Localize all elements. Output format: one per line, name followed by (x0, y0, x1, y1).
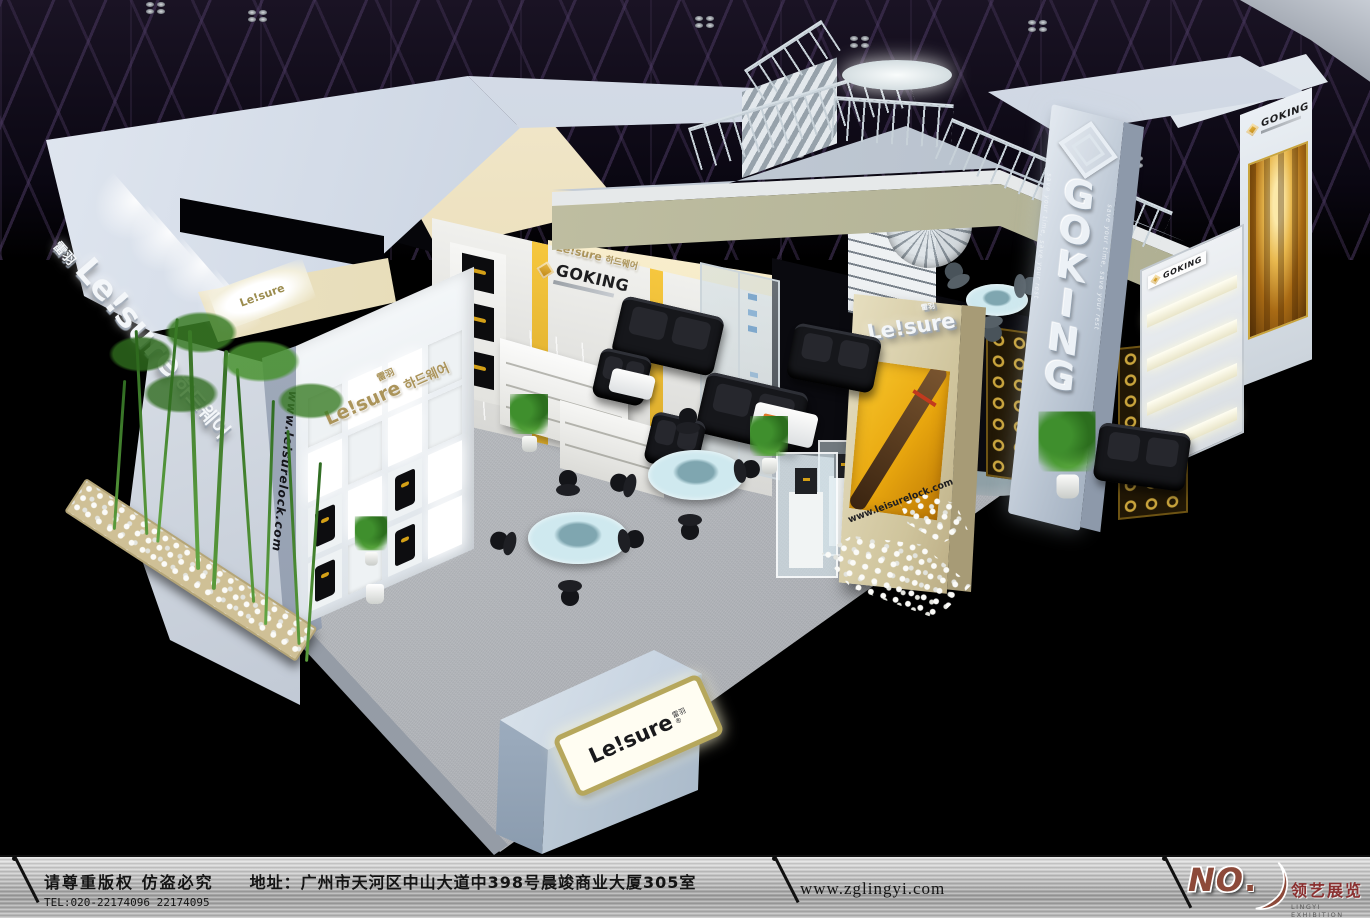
downlight-cluster (146, 2, 165, 14)
potted-plant (351, 516, 390, 565)
glass-label (750, 372, 758, 379)
display-tile (428, 495, 462, 559)
potted-plant (506, 394, 552, 452)
display-tile (428, 385, 462, 449)
goking-diamond-icon (1151, 275, 1161, 285)
shelf-light (1147, 363, 1237, 416)
logo-company-cn: 领艺展览 (1291, 877, 1370, 901)
counter-slat (565, 421, 659, 450)
pedestal-display-box (795, 468, 817, 494)
footer-slash (14, 857, 39, 903)
glass-label (748, 309, 757, 317)
logo-company-en: LINGYI EXHIBITION (1291, 903, 1370, 918)
goking-wordmark: GOKING (1163, 254, 1202, 280)
footer-tel: TEL:020-22174096 22174095 (44, 896, 696, 909)
exhibition-booth-render: Le!sure 雷羽 Le!sure 하드웨어 www.leisurelock.… (0, 0, 1370, 918)
goking-diamond-icon (1246, 123, 1259, 136)
deck-railing (831, 96, 954, 148)
glass-label (748, 293, 757, 301)
display-tile (428, 440, 462, 504)
goking-vertical-letter: G (1042, 355, 1077, 399)
cafe-chair (678, 512, 702, 540)
display-tile (388, 458, 422, 522)
logo-no-text: NO (1188, 861, 1244, 899)
display-tile (348, 421, 382, 485)
glass-table (528, 512, 628, 564)
cafe-chair (614, 526, 646, 554)
downlight-cluster (695, 16, 714, 28)
glass-table (648, 450, 744, 500)
cafe-chair (556, 470, 580, 498)
tower-plant (1033, 412, 1102, 499)
skylight-panel (842, 60, 952, 90)
display-tile (388, 513, 422, 577)
display-tile (388, 403, 422, 467)
downlight-cluster (850, 36, 869, 48)
footer-website: www.zglingyi.com (800, 879, 945, 899)
footer-copyright: 请尊重版权 仿盗必究 (44, 869, 214, 893)
lock-display-card (395, 468, 414, 512)
lock-display-card (315, 559, 334, 603)
downlight-cluster (248, 10, 267, 22)
white-planter-pot (366, 584, 384, 604)
footer-bar: 请尊重版权 仿盗必究 地址：广州市天河区中山大道中398号晨竣商业大厦305室 … (0, 855, 1370, 918)
goking-diamond-icon (536, 261, 554, 279)
shelf-light (1147, 319, 1237, 372)
gold-artwork-panel (1248, 141, 1308, 340)
desk-lightbox-brand: Le!sure (585, 710, 676, 768)
logo-swoosh-icon (1254, 859, 1289, 913)
goking-wordmark: GOKING (1261, 101, 1309, 130)
footer-address: 地址：广州市天河区中山大道中398号晨竣商业大厦305室 (250, 869, 697, 893)
downlight-cluster (1028, 20, 1047, 32)
footer-slash (774, 857, 799, 903)
footer-logo: NO . 领艺展览 LINGYI EXHIBITION (1188, 861, 1370, 918)
glass-label (748, 325, 757, 333)
cafe-chair (676, 408, 700, 436)
bamboo-foliage (96, 300, 346, 480)
front-desk: Le!sure 雷羽 ® (490, 636, 715, 858)
potted-plant (746, 416, 792, 474)
lock-display-card (395, 523, 414, 567)
right-wall: GOKING (1240, 87, 1312, 387)
cafe-chair (558, 578, 582, 606)
sofa (1092, 422, 1191, 492)
